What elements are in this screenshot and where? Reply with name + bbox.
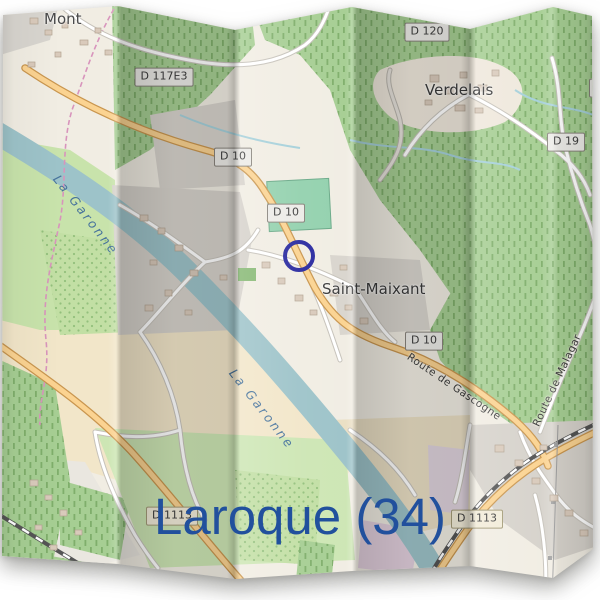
place-label-verdelais: Verdelais	[425, 81, 493, 99]
road-badge-d10-north: D 10	[214, 148, 252, 167]
road-badge-d19: D 19	[547, 133, 585, 152]
map-title: Laroque (34)	[154, 487, 446, 546]
road-badge-d120: D 120	[405, 23, 450, 42]
road-badge-d10-mid: D 10	[267, 204, 305, 223]
road-badge-d1113-east: D 1113	[451, 510, 503, 529]
road-badge-d19-edge: D 19	[589, 79, 600, 98]
location-marker-circle[interactable]	[283, 240, 315, 272]
place-label-mont: Mont	[44, 10, 82, 28]
folded-map-image: Mont Verdelais Saint-Maixant La Garonne …	[0, 0, 600, 600]
place-label-saint-maixant: Saint-Maixant	[322, 280, 425, 298]
road-badge-d117e3: D 117E3	[135, 68, 194, 87]
road-badge-d10-south: D 10	[405, 332, 443, 351]
